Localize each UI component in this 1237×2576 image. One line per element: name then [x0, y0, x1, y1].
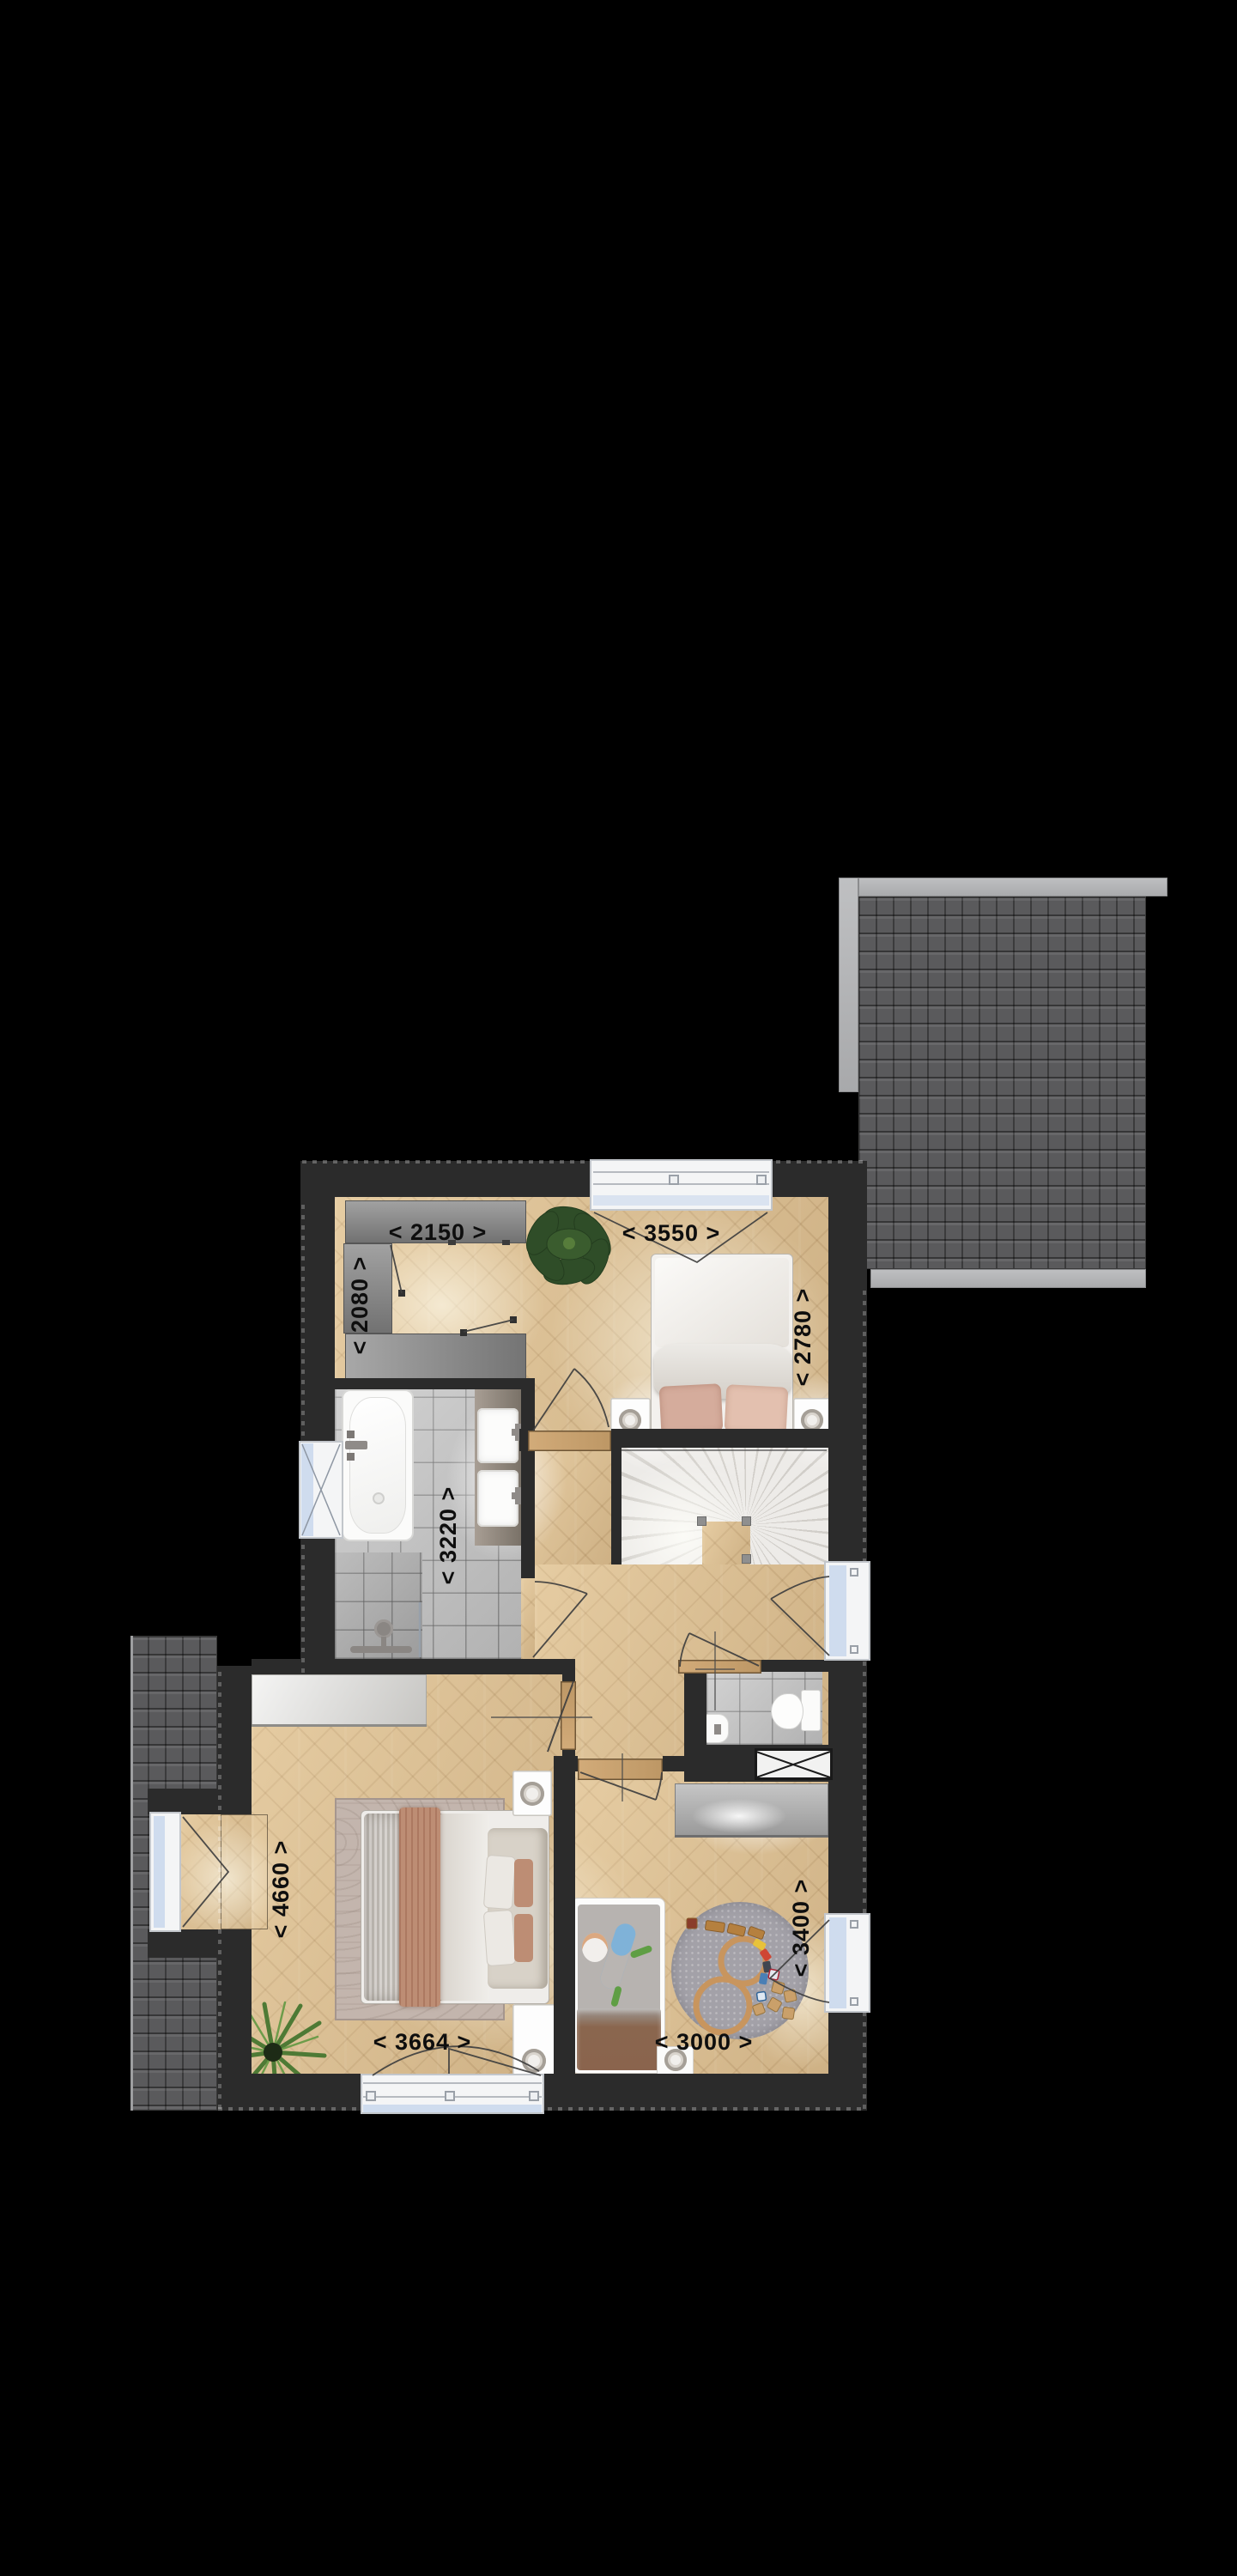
- hallway-corridor-floor: [528, 1448, 611, 1564]
- door-threshold: [578, 1759, 663, 1780]
- roof-ridge-left: [839, 878, 858, 1092]
- accent-pillow: [514, 1859, 533, 1907]
- basin-faucet: [714, 1724, 721, 1735]
- cabinet-handle: [398, 1290, 405, 1297]
- window-handle: [669, 1175, 679, 1185]
- shower-area: [335, 1552, 422, 1659]
- roof-tiles: [858, 896, 1146, 1269]
- wall: [521, 1389, 535, 1578]
- shower-head: [374, 1619, 393, 1638]
- dimension-label-closet-depth: < 2080 >: [346, 1232, 373, 1378]
- dimension-label-bedroom-top-width: < 3550 >: [598, 1219, 744, 1247]
- door-threshold: [678, 1660, 761, 1674]
- wall: [217, 2074, 362, 2111]
- bed-pillow: [483, 1855, 516, 1910]
- dimension-label-bedroom-right-width: < 3000 >: [631, 2028, 777, 2056]
- wall: [562, 1756, 578, 1771]
- dimension-label-bedroom-right-depth: < 3400 >: [787, 1855, 815, 2001]
- wall-hatching: [218, 1668, 221, 2109]
- stairs-railing-post: [742, 1516, 751, 1526]
- bathtub-drain: [373, 1492, 385, 1504]
- window-handle: [756, 1175, 767, 1185]
- basin-faucet: [515, 1487, 521, 1504]
- dimension-label-bedroom-top-depth: < 2780 >: [789, 1264, 816, 1410]
- bath-faucet-knob: [347, 1453, 355, 1461]
- wall: [300, 1161, 867, 1197]
- shaft-box: [755, 1748, 833, 1780]
- accent-pillow: [514, 1914, 533, 1962]
- window-handle: [850, 1568, 858, 1577]
- roof-ridge-top: [858, 878, 1167, 896]
- wardrobe: [252, 1674, 427, 1726]
- window-handle: [850, 1920, 858, 1929]
- wall-hatching: [302, 1160, 865, 1163]
- window-glass: [829, 1565, 846, 1656]
- window-mullion: [593, 1171, 769, 1173]
- toy-plush-bunny: [582, 1933, 608, 1962]
- wall: [828, 1161, 867, 1563]
- window-master-bedroom: [361, 2074, 544, 2114]
- window-glass: [154, 1816, 165, 1928]
- wall: [335, 1378, 535, 1389]
- bathtub-inner: [349, 1397, 406, 1534]
- wall: [554, 1756, 575, 2074]
- bathroom-doorway-floor: [521, 1578, 535, 1659]
- stairs-railing-post: [697, 1516, 706, 1526]
- washbasin: [477, 1408, 518, 1463]
- window-kids-room: [824, 1913, 870, 2013]
- roof-edge-highlight: [130, 1636, 133, 2111]
- wall: [554, 2074, 867, 2111]
- wall: [300, 1197, 335, 1674]
- toilet-bowl: [771, 1693, 803, 1729]
- window-glass: [829, 1917, 846, 2008]
- roof-ridge-bottom: [870, 1269, 1146, 1288]
- stairs-railing-post: [742, 1554, 751, 1564]
- window-handle: [366, 2091, 376, 2101]
- cabinet-handle: [510, 1316, 517, 1323]
- door-threshold: [528, 1431, 611, 1451]
- alcove-cupboard-outline: [221, 1814, 268, 1929]
- window-mullion: [363, 2082, 542, 2084]
- window-handle: [529, 2091, 539, 2101]
- dimension-label-bathroom-depth: < 3220 >: [434, 1462, 462, 1608]
- dimension-label-closet-width: < 2150 >: [365, 1218, 511, 1246]
- table-lamp: [520, 1782, 544, 1806]
- wall: [148, 1929, 252, 1958]
- toilet-tank: [801, 1690, 821, 1731]
- throw-blanket: [399, 1807, 440, 2007]
- bed-pillow: [659, 1383, 724, 1435]
- wall: [611, 1448, 622, 1564]
- bath-faucet: [345, 1441, 367, 1449]
- wardrobe-front-edge: [252, 1724, 427, 1727]
- wall: [217, 1666, 252, 1789]
- duvet: [655, 1258, 789, 1347]
- table-lamp: [522, 2049, 546, 2073]
- window-handle: [850, 1645, 858, 1654]
- window-glass: [363, 2105, 542, 2112]
- door-threshold: [561, 1681, 576, 1750]
- double-bed: [651, 1254, 793, 1438]
- shower-rail: [350, 1646, 412, 1653]
- dimension-label-bedroom-left-depth: < 4660 >: [267, 1816, 294, 1962]
- desk-highlight: [692, 1799, 786, 1833]
- wall: [828, 1659, 867, 1915]
- window-glass: [593, 1195, 769, 1206]
- roof-top-right: [839, 878, 1167, 1288]
- wall: [252, 1659, 575, 1674]
- floor-plan: < 2150 > < 3550 > < 2080 > < 2780 > < 32…: [0, 0, 1237, 2576]
- bed-pillow: [725, 1384, 789, 1435]
- window-top-bedroom: [590, 1159, 773, 1211]
- wall: [148, 1789, 252, 1814]
- wall-hatching: [301, 1199, 305, 1673]
- window-glass: [301, 1443, 313, 1536]
- double-bed-master: [361, 1810, 549, 2004]
- cabinet-handle: [460, 1329, 467, 1336]
- bathtub: [342, 1389, 414, 1541]
- window-handle: [850, 1997, 858, 2006]
- window-handle: [445, 2091, 455, 2101]
- french-door-alcove: [149, 1812, 181, 1932]
- dimension-label-bedroom-left-width: < 3664 >: [349, 2028, 495, 2056]
- window-stair-landing: [824, 1561, 870, 1661]
- wall: [760, 1660, 833, 1672]
- bath-faucet-knob: [347, 1431, 355, 1438]
- window-bathroom: [299, 1441, 343, 1539]
- bed-pillow: [483, 1910, 516, 1966]
- window-mullion: [593, 1183, 769, 1185]
- desk: [675, 1783, 828, 1838]
- duvet-white: [440, 1814, 489, 2001]
